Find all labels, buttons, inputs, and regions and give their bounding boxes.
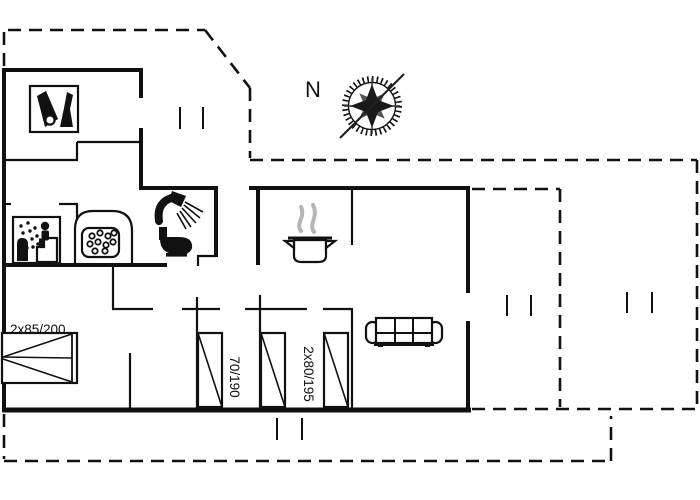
single-bed-1	[198, 333, 222, 407]
whirlpool-icon	[75, 211, 132, 263]
floorplan-canvas: 2x85/200 70/190 2x80/195 N	[0, 0, 700, 500]
shower-icon	[159, 191, 203, 229]
compass-rose-icon	[340, 74, 404, 138]
cooking-pot-icon	[285, 205, 335, 262]
cleaning-equipment-icon	[30, 86, 78, 132]
twin-beds-size-label: 2x80/195	[301, 346, 316, 402]
floorplan-svg: 2x85/200 70/190 2x80/195 N	[0, 0, 700, 500]
single-bed-size-label: 70/190	[227, 356, 242, 397]
single-bed-3	[324, 333, 348, 407]
double-bed-size-label: 2x85/200	[10, 322, 66, 337]
toilet-icon	[159, 227, 192, 257]
sofa-icon	[366, 318, 442, 347]
compass-north-label: N	[305, 77, 321, 102]
single-bed-2	[261, 333, 285, 407]
sauna-icon	[13, 217, 60, 263]
double-bed	[2, 333, 77, 383]
